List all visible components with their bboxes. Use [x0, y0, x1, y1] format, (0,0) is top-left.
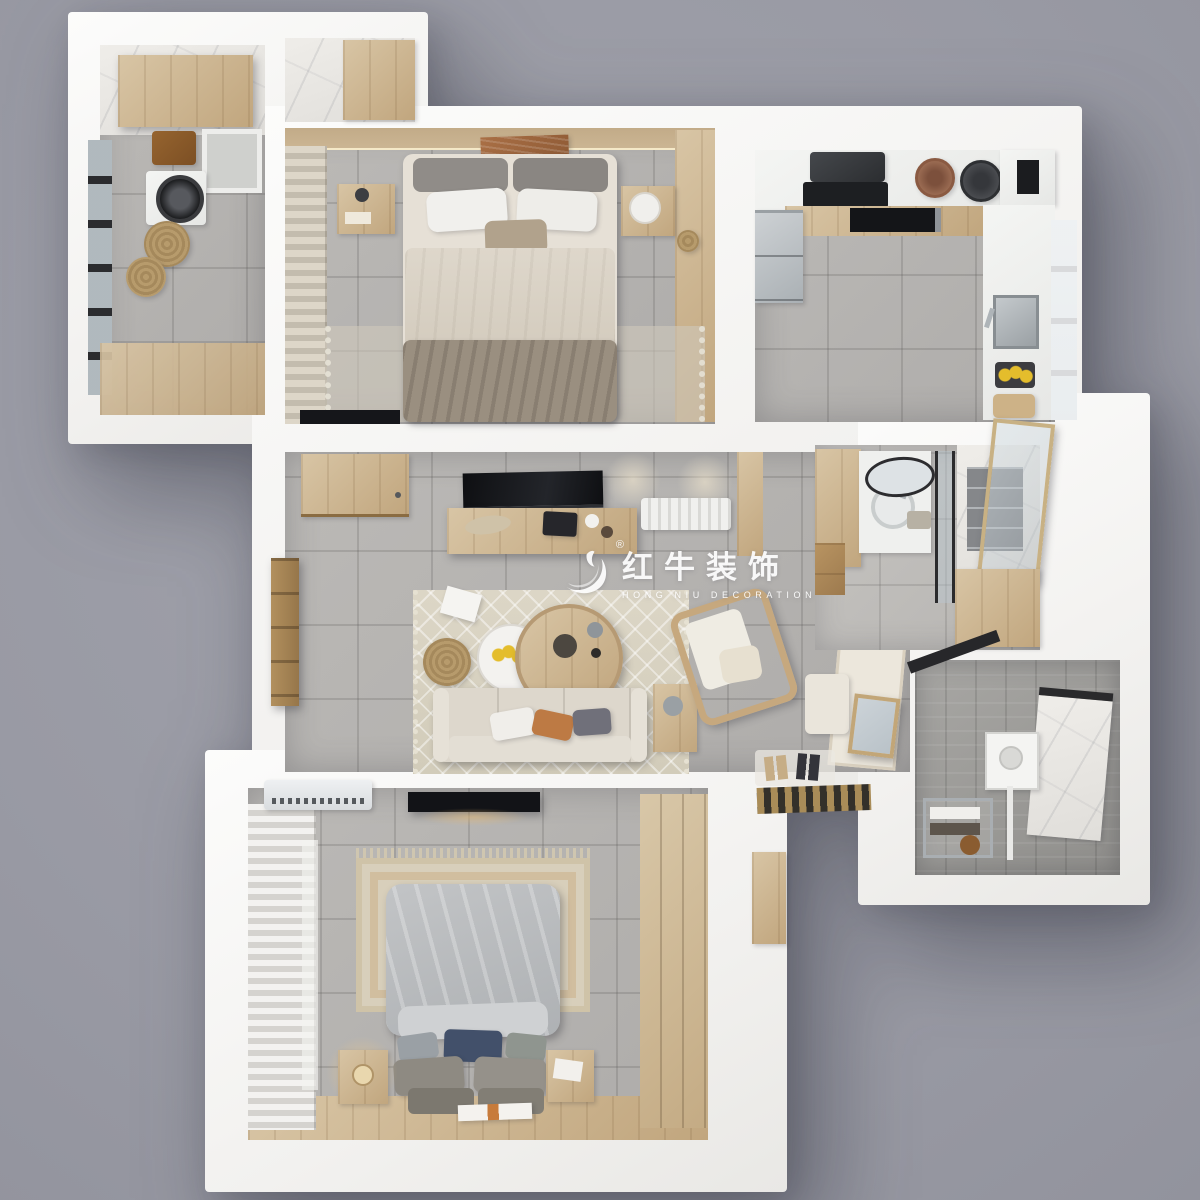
sheer-curtain — [302, 840, 318, 1090]
entry-door — [271, 558, 299, 706]
throw-blanket — [403, 340, 617, 422]
doormat — [757, 784, 872, 814]
bull-swoosh-icon: ® — [556, 543, 612, 599]
bedside-lamp — [352, 1064, 374, 1086]
laundry-sink — [202, 129, 262, 193]
towel-rack — [923, 798, 993, 858]
coffee-machine-screen — [1017, 160, 1039, 194]
bedroom-door — [301, 454, 409, 517]
room-bathroom — [815, 445, 1040, 650]
rug-fringe — [356, 848, 590, 858]
nightstand-magazine — [553, 1058, 584, 1082]
glass-shower-partition — [935, 451, 955, 603]
master-door-panel — [752, 852, 786, 944]
headboard-cushion-right — [513, 158, 608, 192]
headboard-cushion-left — [413, 158, 508, 192]
jute-pouf — [423, 638, 471, 686]
towel-dark — [930, 823, 980, 835]
rattan-item — [960, 835, 980, 855]
hall-cabinet — [737, 452, 763, 556]
decor-tray — [629, 192, 661, 224]
brand-name-en: HONG NIU DECORATION — [622, 590, 816, 600]
shower-stem — [1007, 786, 1013, 860]
sofa-arm-right — [631, 688, 647, 762]
brand-name-cn: 红牛装饰 — [622, 542, 816, 587]
room-kitchen — [755, 150, 1055, 422]
registered-mark: ® — [616, 539, 624, 551]
induction-hob — [850, 208, 941, 232]
decor-vase — [677, 230, 699, 252]
lemon-basket — [995, 362, 1035, 388]
gray-vase — [663, 696, 683, 716]
room-closet-nook — [285, 38, 415, 122]
table-lamp — [355, 188, 369, 202]
black-tray — [542, 511, 577, 537]
entry-bench — [805, 674, 849, 734]
nook-wardrobe — [343, 40, 415, 120]
storage-box — [152, 131, 196, 165]
vanity-lower-cabinet — [815, 543, 845, 595]
room-master-bedroom — [248, 788, 708, 1140]
wall-cabinet — [118, 55, 253, 127]
slippers-black — [796, 753, 820, 781]
washer-door — [156, 175, 204, 223]
living-tv — [463, 471, 604, 511]
cutting-board — [993, 394, 1035, 418]
sofa-back-cushions — [449, 736, 631, 762]
watermark: ® 红牛装饰 HONG NIU DECORATION — [556, 542, 816, 600]
toiletries-basket — [907, 511, 931, 529]
air-conditioner — [264, 780, 372, 810]
watermark-text: 红牛装饰 HONG NIU DECORATION — [622, 542, 816, 600]
ac-vents — [272, 798, 364, 804]
room-shower — [915, 660, 1120, 875]
coffee-table-plate — [587, 622, 603, 638]
marble-window-panel — [1027, 687, 1114, 841]
range-hood — [810, 152, 885, 182]
kitchen-window — [1051, 220, 1077, 420]
slippers-tan — [764, 755, 788, 781]
rattan-basket-2 — [126, 257, 166, 297]
bedroom-tv — [300, 410, 400, 424]
door-handle — [395, 492, 401, 498]
shower-head — [999, 746, 1023, 770]
coffee-table-bowl — [553, 634, 577, 658]
wood-sill — [100, 343, 265, 415]
towel-white — [930, 807, 980, 819]
knit-curtain — [285, 146, 327, 424]
sofa-side-table — [653, 684, 697, 752]
decor-bowl — [601, 526, 613, 538]
floor-magazine — [458, 1103, 533, 1122]
bronze-pot — [915, 158, 955, 198]
radiator — [641, 498, 731, 530]
room-laundry-balcony — [100, 45, 265, 415]
sofa-pillow-gray — [572, 708, 612, 737]
white-vase — [585, 514, 599, 528]
leaning-mirror — [848, 693, 901, 758]
tv-light-glow — [418, 808, 528, 826]
armchair-pillow — [718, 644, 763, 684]
kitchen-sink — [993, 295, 1039, 349]
apartment-3d-floorplan: ® 红牛装饰 HONG NIU DECORATION — [0, 0, 1200, 1200]
master-wardrobe — [640, 794, 708, 1128]
sofa-arm-left — [433, 688, 449, 762]
refrigerator — [755, 210, 803, 303]
room-bedroom-2 — [285, 128, 715, 424]
coffee-table-cup — [591, 648, 601, 658]
cooktop — [803, 182, 888, 208]
black-pot — [960, 160, 1002, 202]
books — [345, 212, 371, 224]
